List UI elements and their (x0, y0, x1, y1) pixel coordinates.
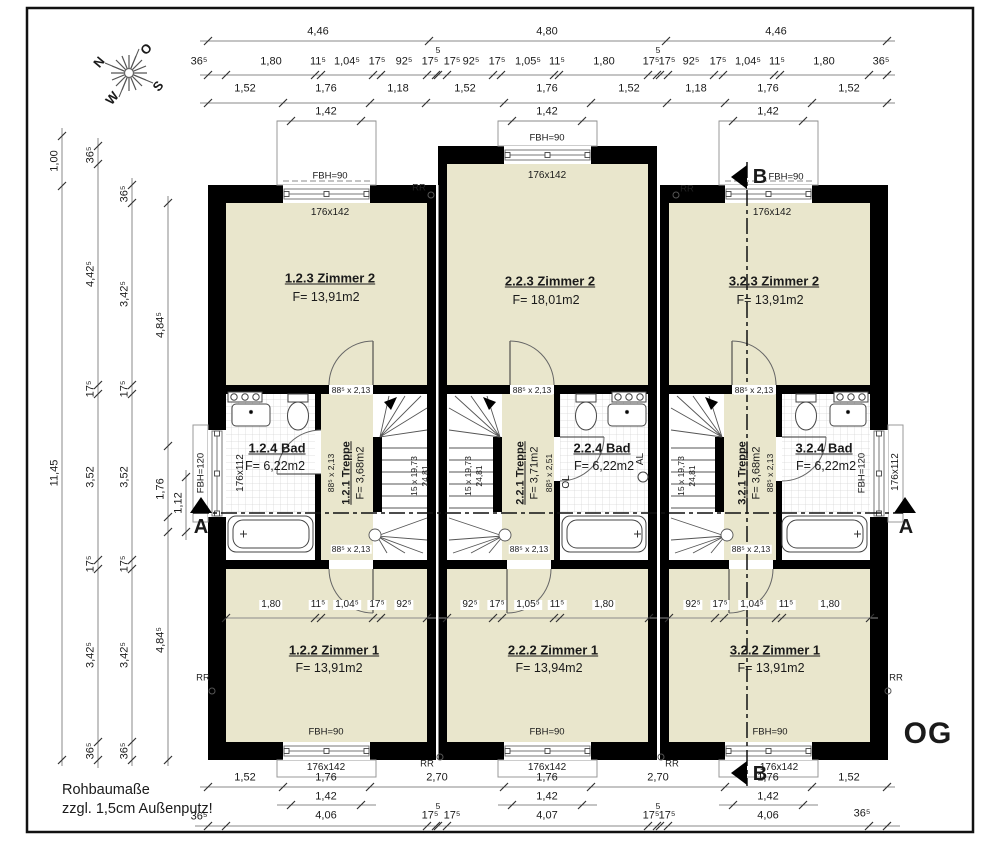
dim-label: 1,05⁵ (514, 600, 542, 610)
room-area-treppe-h3: F= 3,68m2 (752, 447, 763, 500)
fbh-label: FBH=120 (857, 453, 867, 493)
room-name-zimmer1-h1: 1.2.2 Zimmer 1 (289, 644, 379, 657)
dim-label: 3,42⁵ (120, 642, 131, 668)
dim-label: 17⁵ (86, 381, 97, 398)
dim-label: 1,04⁵ (735, 57, 761, 68)
dim-label: 92⁵ (460, 600, 479, 610)
window-size-label: 176x142 (528, 763, 566, 773)
dim-label: 36⁵ (120, 743, 131, 760)
dim-label: 1,76 (757, 84, 778, 95)
dim-label: 1,76 (536, 773, 557, 784)
dim-label: 1,52 (838, 84, 859, 95)
dim-label: 3,42⁵ (120, 281, 131, 307)
dim-label: 17⁵ (369, 57, 386, 68)
dim-label: 4,84⁵ (156, 312, 167, 338)
dim-label: 36⁵ (120, 186, 131, 203)
dim-label: 1,52 (618, 84, 639, 95)
note-line: zzgl. 1,5cm Außenputz! (62, 802, 213, 817)
room-name-zimmer1-h2: 2.2.2 Zimmer 1 (508, 644, 598, 657)
room-name-zimmer1-h3: 3.2.2 Zimmer 1 (730, 644, 820, 657)
section-a-label: A (899, 517, 913, 537)
dim-label: 11⁵ (310, 57, 326, 68)
dim-label: 17⁵ (444, 57, 461, 68)
dim-label: 4,42⁵ (86, 261, 97, 287)
room-area-zimmer1-h3: F= 13,91m2 (737, 662, 804, 675)
dim-label: 3,52 (86, 466, 97, 487)
floor-plan-drawing (0, 0, 986, 848)
dim-label: 1,18 (685, 84, 706, 95)
dim-label: 4,07 (536, 811, 557, 822)
dim-label: 17⁵ (710, 57, 727, 68)
dim-label: 5 (656, 46, 661, 55)
dim-label: 1,52 (234, 84, 255, 95)
window-size-label: 176x112 (891, 453, 901, 491)
rr-label: RR (196, 673, 210, 683)
window-size-label: 176x112 (236, 454, 246, 492)
door-size-top-h1: 88⁵ x 2,13 (331, 386, 372, 395)
dim-label: 1,52 (838, 773, 859, 784)
stair-going-h2: 24,81 (475, 465, 484, 486)
stair-run-h1: 15 x 19,73 (410, 456, 419, 496)
floor-plan-page: N O S W 4,46 4,80 4,46 36⁵ 1,80 11⁵ 1,04… (0, 0, 986, 848)
ol-label-h2: OL (562, 475, 572, 488)
dim-label: 17⁵ (120, 556, 131, 573)
window-h2-bottom (504, 742, 591, 760)
dim-label: 5 (436, 46, 441, 55)
stair-run-h2: 15 x 19,73 (464, 456, 473, 496)
rr-label: RR (420, 759, 434, 769)
dim-label: 1,42 (315, 792, 336, 803)
dim-label: 17⁵ (487, 600, 506, 610)
room-name-treppe-h1: 1.2.1 Treppe (342, 441, 353, 505)
dim-label: 1,00 (50, 150, 61, 171)
dim-label: 11⁵ (309, 600, 328, 610)
fbh-label: FBH=90 (768, 172, 803, 182)
dim-label: 17⁵ (643, 57, 660, 68)
window-h3-top (725, 185, 812, 203)
window-east (870, 430, 888, 517)
dim-label: 17⁵ (422, 57, 439, 68)
section-a-label: A (194, 517, 208, 537)
rr-label: RR (665, 759, 679, 769)
dim-label: 1,04⁵ (334, 57, 360, 68)
fbh-label: FBH=90 (312, 171, 347, 181)
dim-label: 11⁵ (769, 57, 785, 68)
dim-label: 1,80 (259, 600, 282, 610)
dim-label: 4,84⁵ (156, 627, 167, 653)
dim-label: 1,42 (757, 107, 778, 118)
room-name-zimmer2-h3: 3.2.3 Zimmer 2 (729, 275, 819, 288)
dim-label: 1,76 (315, 84, 336, 95)
dim-label: 1,80 (813, 57, 834, 68)
dim-label: 11⁵ (549, 57, 565, 68)
room-area-zimmer2-h3: F= 13,91m2 (736, 294, 803, 307)
dim-label: 1,80 (818, 600, 841, 610)
dim-label: 36⁵ (854, 809, 871, 820)
dim-label: 17⁵ (86, 556, 97, 573)
section-b-label: B (753, 167, 767, 187)
dim-label: 17⁵ (643, 811, 660, 822)
room-area-zimmer2-h2: F= 18,01m2 (512, 294, 579, 307)
dim-label: 17⁵ (120, 381, 131, 398)
dim-label: 92⁵ (683, 57, 700, 68)
window-size-label: 176x142 (753, 208, 791, 218)
dim-label: 36⁵ (86, 147, 97, 164)
dim-label: 1,76 (315, 773, 336, 784)
room-area-bad-h3: F= 6,22m2 (796, 460, 856, 473)
dim-label: 1,76 (156, 478, 167, 499)
stair-going-h1: 24,81 (421, 465, 430, 486)
dim-label: 4,06 (757, 811, 778, 822)
door-size-bad-h1: 88⁵ x 2,13 (327, 454, 336, 493)
room-name-treppe-h3: 3.2.1 Treppe (738, 441, 749, 505)
dim-label: 1,42 (536, 792, 557, 803)
dim-label: 1,42 (315, 107, 336, 118)
section-b-label: B (753, 764, 767, 784)
dim-label: 1,12 (174, 492, 185, 513)
stair-run-h3: 15 x 19,73 (677, 456, 686, 496)
fbh-label: FBH=90 (529, 727, 564, 737)
dim-label: 17⁵ (489, 57, 506, 68)
dim-label: 17⁵ (422, 811, 439, 822)
dim-label: 92⁵ (394, 600, 413, 610)
dim-label: 2,70 (426, 773, 447, 784)
dim-label: 2,70 (647, 773, 668, 784)
window-h3-bottom (725, 742, 812, 760)
floor-tag: OG (904, 719, 953, 749)
room-area-treppe-h1: F= 3,68m2 (356, 447, 367, 500)
rr-label: RR (680, 184, 694, 194)
dim-label: 11⁵ (548, 600, 567, 610)
door-size-bottom-h3: 88⁵ x 2,13 (731, 545, 772, 554)
dim-label: 1,04⁵ (738, 600, 766, 610)
room-area-zimmer2-h1: F= 13,91m2 (292, 291, 359, 304)
dim-label: 11,45 (50, 460, 61, 487)
door-size-bad-h3: 88⁵ x 2,13 (766, 454, 775, 493)
dim-label: 17⁵ (659, 57, 676, 68)
dim-label: 36⁵ (191, 57, 208, 68)
dim-label: 11⁵ (777, 600, 796, 610)
dim-label: 36⁵ (86, 743, 97, 760)
door-size-top-h3: 88⁵ x 2,13 (734, 386, 775, 395)
dim-label: 1,18 (387, 84, 408, 95)
dim-label: 17⁵ (710, 600, 729, 610)
dim-label: 5 (436, 802, 441, 811)
stair-going-h3: 24,81 (688, 465, 697, 486)
room-name-bad-h1: 1.2.4 Bad (248, 442, 305, 455)
dim-label: 92⁵ (396, 57, 413, 68)
dim-label: 4,46 (765, 27, 786, 38)
fbh-label: FBH=90 (308, 727, 343, 737)
al-label-h2: AL (636, 453, 646, 465)
dim-label: 4,46 (307, 27, 328, 38)
dim-label: 1,42 (536, 107, 557, 118)
room-area-zimmer1-h1: F= 13,91m2 (295, 662, 362, 675)
dim-label: 1,80 (593, 57, 614, 68)
room-name-treppe-h2: 2.2.1 Treppe (516, 441, 527, 505)
window-size-label: 176x142 (311, 208, 349, 218)
dim-label: 4,80 (536, 27, 557, 38)
dim-label: 1,42 (757, 792, 778, 803)
window-h1-bottom (283, 742, 370, 760)
party-wall-gap-2 (657, 185, 660, 760)
dim-label: 17⁵ (367, 600, 386, 610)
dim-label: 1,52 (234, 773, 255, 784)
dim-label: 92⁵ (683, 600, 702, 610)
party-wall-gap-1 (436, 185, 439, 760)
dim-label: 17⁵ (444, 811, 461, 822)
window-h2-top (504, 146, 591, 164)
rr-label: RR (412, 183, 426, 193)
dim-label: 4,06 (315, 811, 336, 822)
dim-label: 1,76 (536, 84, 557, 95)
dim-label: 1,80 (592, 600, 615, 610)
dim-label: 92⁵ (463, 57, 480, 68)
room-area-bad-h2: F= 6,22m2 (574, 460, 634, 473)
room-name-bad-h3: 3.2.4 Bad (795, 442, 852, 455)
dim-label: 3,42⁵ (86, 642, 97, 668)
door-size-top-h2: 88⁵ x 2,13 (512, 386, 553, 395)
dim-label: 1,52 (454, 84, 475, 95)
window-size-label: 176x142 (528, 171, 566, 181)
dim-label: 17⁵ (659, 811, 676, 822)
dim-label: 3,52 (120, 466, 131, 487)
rr-label: RR (889, 673, 903, 683)
window-h1-top (283, 185, 370, 203)
dim-label: 1,05⁵ (515, 57, 541, 68)
dim-label: 1,04⁵ (333, 600, 361, 610)
room-area-zimmer1-h2: F= 13,94m2 (515, 662, 582, 675)
window-west (208, 430, 226, 517)
room-area-bad-h1: F= 6,22m2 (245, 460, 305, 473)
door-size-bottom-h1: 88⁵ x 2,13 (331, 545, 372, 554)
dim-label: 36⁵ (873, 57, 890, 68)
room-name-zimmer2-h2: 2.2.3 Zimmer 2 (505, 275, 595, 288)
window-size-label: 176x142 (307, 763, 345, 773)
fbh-label: FBH=90 (752, 727, 787, 737)
fbh-label: FBH=90 (529, 133, 564, 143)
dim-label: 1,80 (260, 57, 281, 68)
door-size-bottom-h2: 88⁵ x 2,13 (509, 545, 550, 554)
room-name-bad-h2: 2.2.4 Bad (573, 442, 630, 455)
fbh-label: FBH=120 (196, 453, 206, 493)
door-size-bad-h2: 88⁵ x 2,51 (545, 454, 554, 493)
note-line: Rohbaumaße (62, 783, 150, 798)
room-name-zimmer2-h1: 1.2.3 Zimmer 2 (285, 272, 375, 285)
room-area-treppe-h2: F= 3,71m2 (530, 447, 541, 500)
